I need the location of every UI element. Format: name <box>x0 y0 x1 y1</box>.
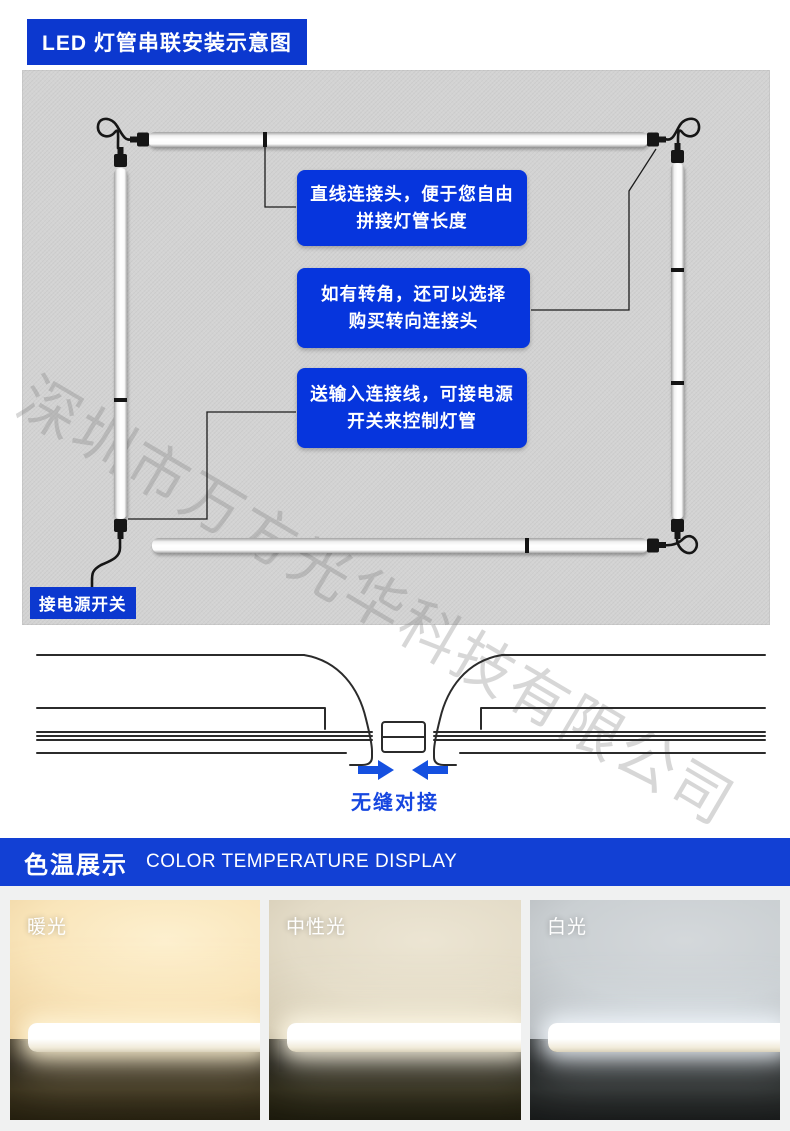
hanging-hook-icon-top-left <box>98 119 132 148</box>
product-detail-page: LED 灯管串联安装示意图 深圳市万方光华科技有限公司 <box>0 0 790 1131</box>
color-temperature-banner: 色温展示 COLOR TEMPERATURE DISPLAY <box>0 838 790 886</box>
section-title-badge: LED 灯管串联安装示意图 <box>27 19 307 65</box>
hanging-hook-icon-top-right <box>665 119 699 144</box>
led-tube-bottom <box>152 538 648 553</box>
push-together-arrows <box>358 760 448 780</box>
led-tube-right <box>671 163 684 519</box>
glowing-tube-image <box>548 1023 781 1052</box>
panel-label: 中性光 <box>286 912 346 939</box>
color-panel-neutral: 中性光 <box>269 900 521 1120</box>
led-tube-left <box>114 168 127 519</box>
installation-diagram-panel: 直线连接头，便于您自由 拼接灯管长度 如有转角，还可以选择 购买转向连接头 送输… <box>22 70 770 625</box>
callout-text-line: 送输入连接线，可接电源 <box>310 386 514 404</box>
color-panel-white: 白光 <box>530 900 780 1120</box>
joint-connector-piece <box>382 722 425 752</box>
power-cable <box>92 538 120 587</box>
callout-text-line: 开关来控制灯管 <box>347 413 477 431</box>
arrow-right-icon <box>358 760 394 780</box>
callout-straight-connector: 直线连接头，便于您自由 拼接灯管长度 <box>297 170 527 246</box>
banner-title-cn: 色温展示 <box>24 845 128 880</box>
arrow-left-icon <box>412 760 448 780</box>
color-panel-warm: 暖光 <box>10 900 260 1120</box>
banner-title-en: COLOR TEMPERATURE DISPLAY <box>146 851 457 873</box>
power-switch-label: 接电源开关 <box>30 587 136 619</box>
callout-corner-connector: 如有转角，还可以选择 购买转向连接头 <box>297 268 530 348</box>
callout-text-line: 如有转角，还可以选择 <box>321 286 506 304</box>
callout-text-line: 拼接灯管长度 <box>357 213 468 231</box>
led-tube-top <box>148 132 648 147</box>
panel-label: 暖光 <box>27 912 67 939</box>
callout-text-line: 购买转向连接头 <box>349 313 479 331</box>
panel-label: 白光 <box>547 912 587 939</box>
callout-text-line: 直线连接头，便于您自由 <box>310 186 514 204</box>
glowing-tube-image <box>28 1023 261 1052</box>
callout-input-cable: 送输入连接线，可接电源 开关来控制灯管 <box>297 368 527 448</box>
seamless-joint-caption: 无缝对接 <box>0 786 790 815</box>
glowing-tube-image <box>287 1023 521 1052</box>
